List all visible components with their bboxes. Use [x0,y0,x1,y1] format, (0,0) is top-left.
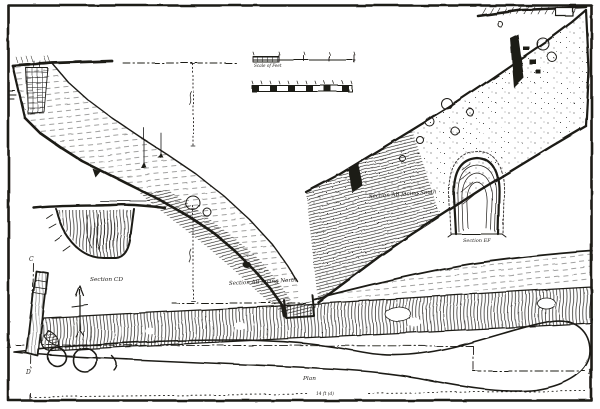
label-point-a: A [6,343,12,350]
label-baseline-note: 14 ft (d) [316,392,334,397]
engraving-artwork [9,6,593,401]
label-section-cd: Section CD [90,277,123,283]
plate-svg: Scale of Feet Section AB facing South Se… [0,0,600,409]
label-plan: Plan [302,376,316,382]
margin-tally-marks [9,91,16,99]
engraving-plate: Scale of Feet Section AB facing South Se… [0,0,600,409]
plan-strip-drawing [41,287,592,351]
section-ab-north-drawing [13,56,300,316]
label-section-ef: Section EF [463,238,491,244]
scale-bars [252,52,355,92]
label-point-b: B [587,368,593,376]
section-cd-drawing [34,201,165,258]
label-point-c: C [29,256,34,263]
scale-label: Scale of Feet [254,63,282,68]
label-point-d: D [25,369,31,376]
